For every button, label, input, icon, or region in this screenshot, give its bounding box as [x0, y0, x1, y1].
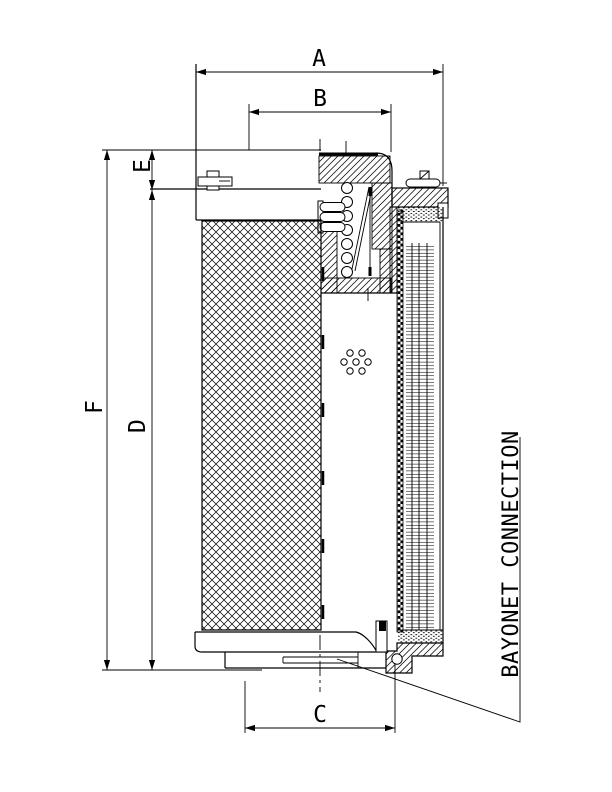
- bayonet-lug-hole: [392, 654, 402, 664]
- dim-label-b: B: [313, 86, 327, 112]
- wire-mesh: [406, 246, 434, 630]
- technical-drawing-page: A B E D F C BAYO: [0, 0, 612, 792]
- filter-element-drawing: A B E D F C BAYO: [0, 0, 612, 792]
- bayonet-pin-left: [198, 171, 232, 190]
- core-perforation-holes: [341, 350, 371, 374]
- bayonet-pin-right: [406, 171, 447, 187]
- dim-label-d: D: [125, 419, 151, 433]
- dimension-f: F: [82, 150, 110, 670]
- dim-label-c: C: [313, 702, 327, 728]
- seat-plate: [150, 64, 321, 220]
- dim-label-f: F: [82, 400, 108, 414]
- end-band-top: [398, 207, 443, 222]
- valve-retainer: [318, 201, 345, 233]
- dimension-e: E: [130, 150, 156, 190]
- seam-strip: [397, 210, 403, 632]
- end-band-bottom: [398, 630, 443, 643]
- valve-stem: [352, 187, 372, 276]
- lug-pin: [379, 621, 386, 631]
- dimension-d: D: [125, 190, 155, 670]
- bayonet-slot: [283, 652, 358, 668]
- filter-media: [202, 221, 323, 630]
- bayonet-connection-label: BAYONET CONNECTION: [499, 430, 524, 677]
- dim-label-a: A: [312, 46, 326, 72]
- dim-label-e: E: [130, 159, 156, 173]
- top-cap-bypass-valve: [318, 139, 397, 301]
- bottom-end-cap: [195, 621, 387, 692]
